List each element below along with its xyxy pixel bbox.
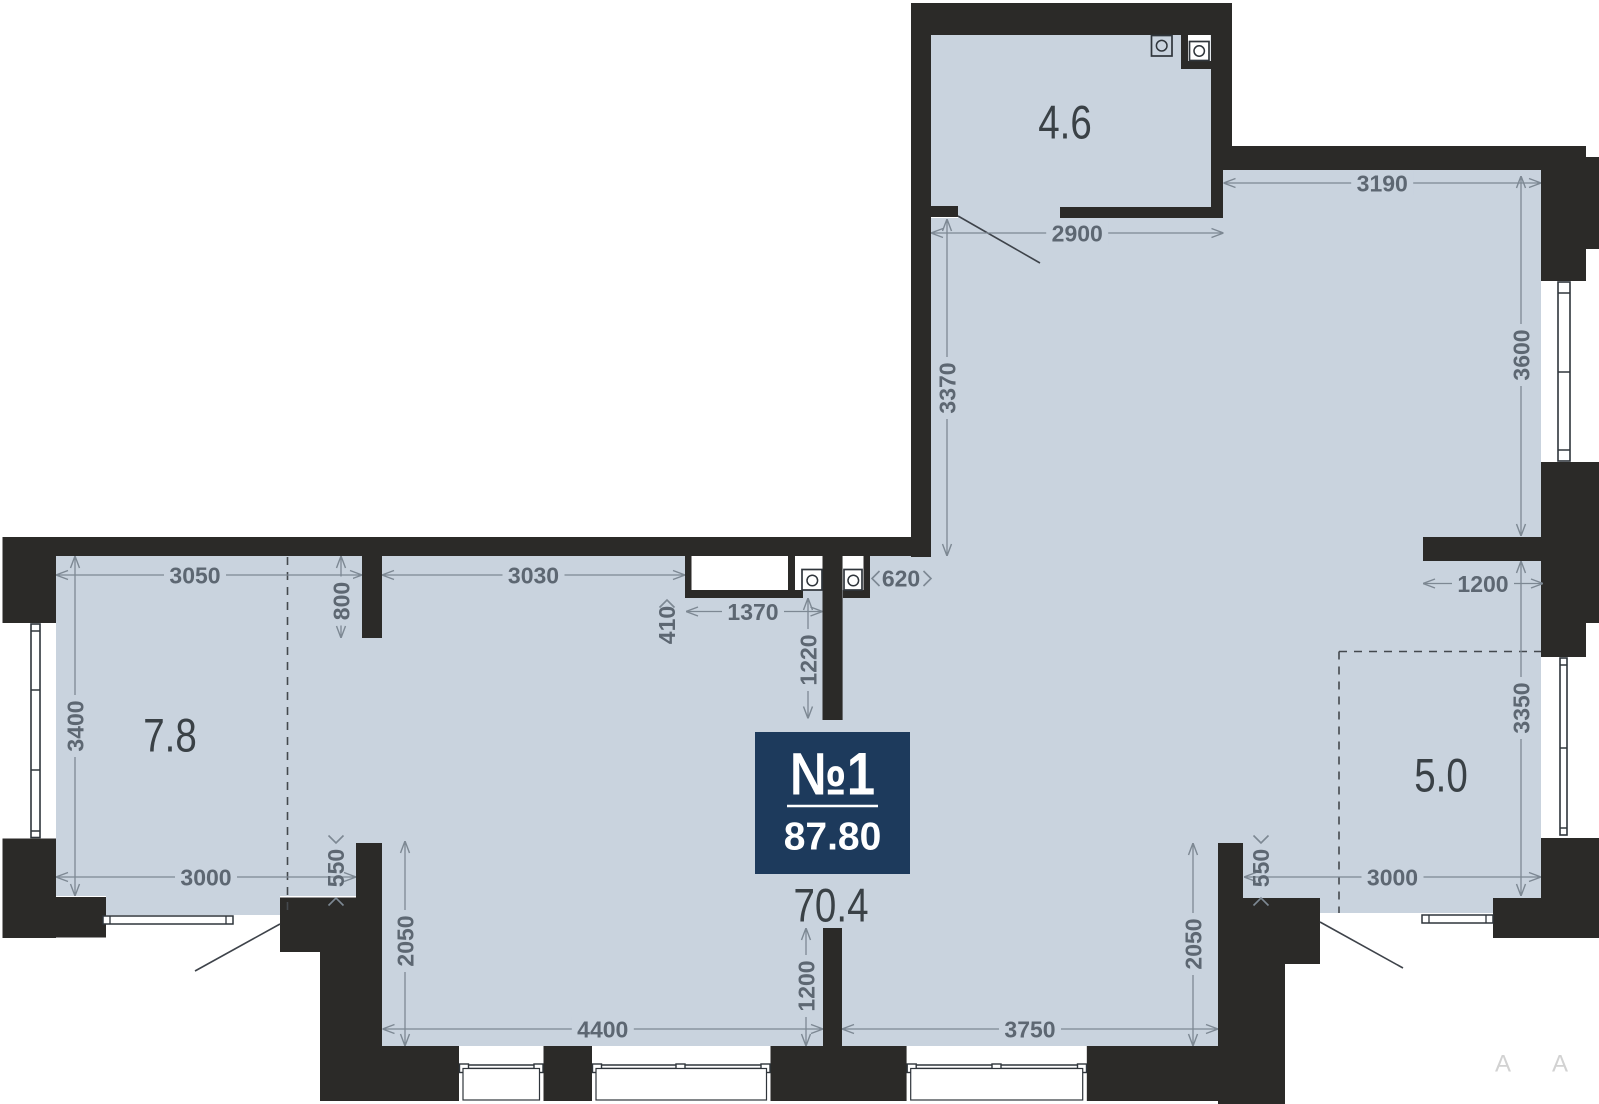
svg-text:620: 620 xyxy=(882,566,920,592)
svg-text:7.8: 7.8 xyxy=(143,710,197,762)
svg-text:A: A xyxy=(1495,1051,1511,1078)
svg-text:3600: 3600 xyxy=(1509,329,1535,380)
svg-text:A: A xyxy=(1552,1051,1568,1078)
svg-text:5.0: 5.0 xyxy=(1414,750,1468,802)
svg-text:87.80: 87.80 xyxy=(784,816,882,859)
svg-text:3030: 3030 xyxy=(508,563,559,589)
svg-text:1220: 1220 xyxy=(796,634,822,685)
svg-text:№1: №1 xyxy=(790,741,875,808)
svg-text:3750: 3750 xyxy=(1004,1017,1055,1043)
svg-text:2900: 2900 xyxy=(1052,221,1103,247)
svg-text:3370: 3370 xyxy=(935,362,961,413)
svg-text:3050: 3050 xyxy=(169,563,220,589)
svg-text:1200: 1200 xyxy=(1457,571,1508,597)
svg-text:2050: 2050 xyxy=(1181,918,1207,969)
svg-text:410: 410 xyxy=(654,606,680,644)
svg-text:2050: 2050 xyxy=(393,915,419,966)
svg-text:3400: 3400 xyxy=(63,700,89,751)
svg-text:550: 550 xyxy=(323,849,349,887)
svg-text:1370: 1370 xyxy=(727,599,778,625)
svg-text:3000: 3000 xyxy=(180,865,231,891)
svg-text:3000: 3000 xyxy=(1367,865,1418,891)
svg-text:70.4: 70.4 xyxy=(793,880,868,932)
svg-text:550: 550 xyxy=(1248,849,1274,887)
svg-text:800: 800 xyxy=(329,582,355,620)
svg-text:3350: 3350 xyxy=(1509,682,1535,733)
svg-text:4400: 4400 xyxy=(577,1017,628,1043)
svg-text:4.6: 4.6 xyxy=(1038,97,1092,149)
svg-text:3190: 3190 xyxy=(1357,171,1408,197)
svg-text:1200: 1200 xyxy=(794,960,820,1011)
